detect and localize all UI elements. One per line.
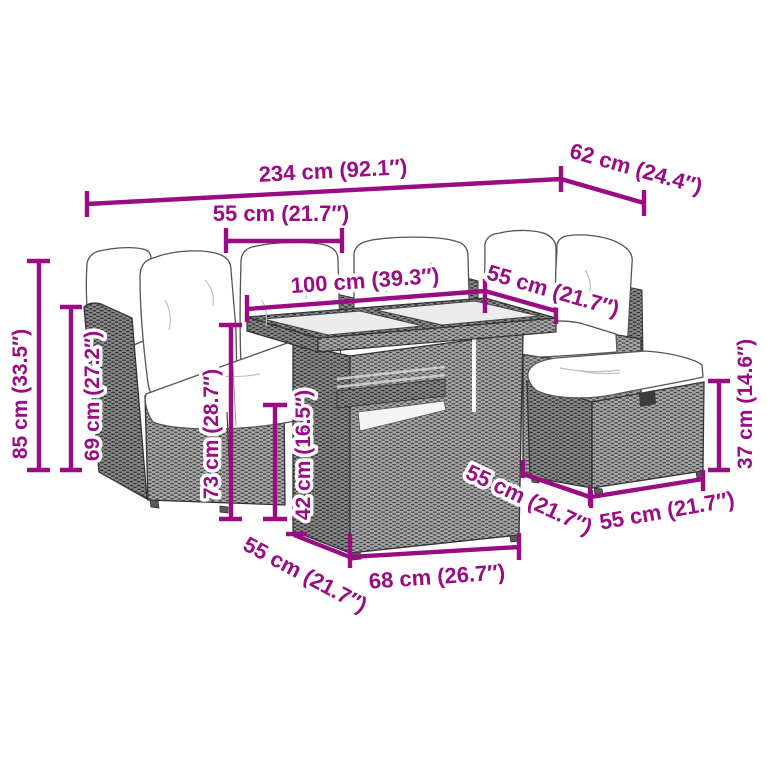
svg-text:55 cm (21.7″): 55 cm (21.7″) xyxy=(213,201,350,226)
svg-text:42 cm (16.5″): 42 cm (16.5″) xyxy=(292,390,315,520)
svg-text:37 cm (14.6″): 37 cm (14.6″) xyxy=(734,339,757,469)
svg-text:85 cm (33.5″): 85 cm (33.5″) xyxy=(9,329,32,459)
svg-text:73 cm (28.7″): 73 cm (28.7″) xyxy=(200,369,223,499)
svg-text:69 cm (27.2″): 69 cm (27.2″) xyxy=(81,331,104,461)
